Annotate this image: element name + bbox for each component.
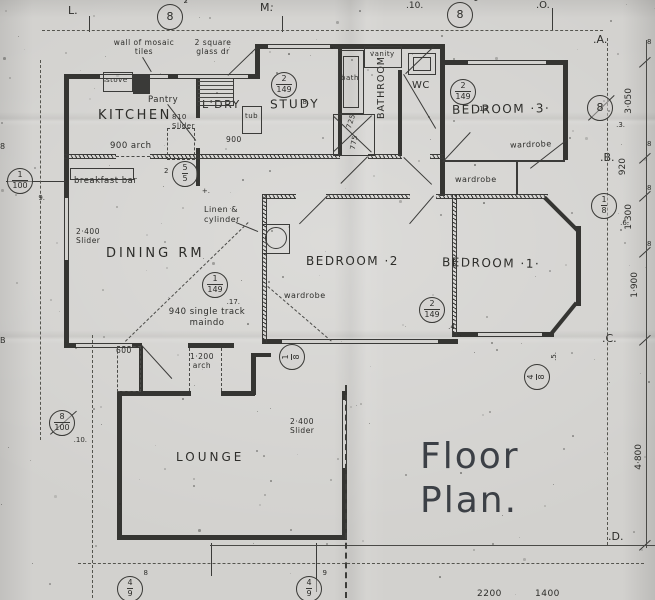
speckle-dot: [155, 445, 156, 446]
wall-segment: [440, 44, 445, 196]
speckle-dot: [101, 424, 102, 425]
edge-fragment: 8: [647, 140, 652, 149]
speckle-dot: [440, 214, 442, 216]
speckle-dot: [405, 326, 406, 327]
speckle-dot: [288, 53, 290, 55]
reference-marker: 55+.2: [172, 161, 198, 187]
marker-number: 8: [457, 9, 464, 21]
speckle-dot: [276, 72, 278, 74]
speckle-dot: [271, 5, 273, 7]
marker-side: +.: [202, 188, 210, 196]
speckle-dot: [585, 137, 588, 140]
marker-denominator: 9: [127, 588, 132, 599]
speckle-dot: [633, 531, 635, 533]
window: [468, 60, 546, 65]
speckle-dot: [345, 188, 346, 189]
speckle-dot: [3, 57, 6, 60]
speckle-dot: [492, 543, 494, 545]
marker-numerator: 2: [460, 82, 465, 91]
dimension-tick: [639, 191, 651, 202]
window: [268, 44, 330, 49]
speckle-dot: [402, 324, 404, 326]
speckle-dot: [620, 229, 622, 231]
arch-reveal: [221, 348, 222, 391]
wall-corner-diagonal: [543, 196, 580, 233]
door-swing-line: [442, 132, 471, 163]
speckle-dot: [193, 485, 195, 487]
interior-wall-hatched: [430, 154, 444, 159]
speckle-dot: [50, 299, 52, 301]
speckle-dot: [49, 583, 51, 585]
arch-reveal: [189, 348, 190, 391]
speckle-dot: [1, 122, 3, 124]
speckle-dot: [93, 408, 95, 410]
speckle-dot: [230, 192, 231, 193]
speckle-dot: [519, 537, 520, 538]
marker-denominator: 149: [276, 84, 291, 95]
reference-marker: 2149.13: [450, 79, 476, 105]
speckle-dot: [100, 406, 102, 408]
window: [478, 332, 542, 337]
speckle-dot: [185, 0, 187, 2]
speckle-dot: [297, 454, 298, 455]
dimension-tick: [639, 57, 651, 68]
marker-denominator: 149: [207, 284, 222, 295]
speckle-dot: [116, 74, 119, 77]
speckle-dot: [418, 160, 420, 162]
marker-side: .10.: [74, 437, 87, 445]
room-label-study: STUDY: [270, 97, 320, 113]
speckle-dot: [161, 223, 162, 224]
marker-sup: 8: [144, 570, 148, 578]
note-arch-900: 900 arch: [110, 141, 152, 152]
speckle-dot: [496, 349, 498, 351]
grid-letter-M: M.: [260, 1, 273, 14]
reference-marker: 81: [447, 2, 473, 28]
speckle-dot: [608, 110, 610, 112]
reference-marker: 2149.8.: [271, 72, 297, 98]
speckle-dot: [523, 558, 526, 561]
speckle-dot: [209, 17, 211, 19]
speckle-dot: [474, 164, 476, 166]
marker-numerator: 1: [282, 354, 291, 359]
wall-segment: [251, 353, 256, 395]
speckle-dot: [610, 20, 612, 22]
door-swing-line: [409, 195, 434, 224]
construction-line-top: [42, 30, 603, 31]
marker-side: .6.: [620, 220, 629, 228]
room-label-lounge: LOUNGE: [176, 450, 244, 465]
speckle-dot: [65, 52, 67, 54]
cupboard-600-outline: [117, 346, 141, 392]
wall-segment: [255, 44, 260, 79]
grid-letter-O: .O.: [536, 0, 550, 11]
speckle-dot: [626, 4, 627, 5]
speckle-dot: [618, 213, 619, 214]
speckle-dot: [163, 186, 164, 187]
marker-sup: 9: [323, 570, 327, 578]
speckle-dot: [428, 116, 430, 118]
speckle-dot: [198, 529, 201, 532]
speckle-dot: [199, 17, 200, 18]
speckle-dot: [30, 460, 31, 461]
speckle-dot: [24, 49, 25, 50]
speckle-dot: [290, 529, 292, 531]
wardrobe-partition: [516, 160, 518, 194]
note-slider-2400-dining: 2·400 Slider: [76, 227, 100, 246]
dim-2200-partial: 2200: [477, 589, 502, 600]
speckle-dot: [629, 265, 630, 266]
dim-1400-partial: 1400: [535, 589, 560, 600]
speckle-dot: [489, 411, 491, 413]
speckle-dot: [362, 540, 364, 542]
speckle-dot: [549, 270, 551, 272]
marker-side: 9.: [38, 195, 45, 203]
speckle-dot: [270, 480, 272, 482]
speckle-dot: [282, 276, 284, 278]
speckle-dot: [288, 226, 290, 228]
speckle-dot: [640, 373, 641, 374]
marker-numerator: 8: [59, 413, 64, 422]
bench-dashed-outline: [167, 128, 195, 160]
grid-letter-A: .A.: [593, 33, 607, 46]
speckle-dot: [212, 262, 215, 265]
marker-numerator: 1: [212, 275, 217, 284]
speckle-dot: [535, 276, 536, 277]
fixture-outline: [70, 168, 134, 180]
speckle-dot: [160, 73, 161, 74]
speckle-dot: [482, 414, 484, 416]
note-linen-cylinder: Linen & cylinder: [204, 205, 240, 225]
speckle-dot: [483, 202, 485, 204]
window: [64, 198, 69, 260]
dim-3050: 3·050: [624, 88, 634, 114]
door-swing-line: [141, 345, 172, 379]
marker-denominator: 8: [601, 205, 606, 216]
marker-pre: 2: [164, 168, 168, 176]
door-swing-line: [299, 195, 328, 224]
interior-wall-hatched: [262, 194, 267, 343]
marker-denominator: 8: [291, 354, 302, 359]
speckle-dot: [460, 472, 462, 474]
marker-number: 8: [597, 102, 604, 114]
speckle-dot: [15, 194, 17, 196]
speckle-dot: [373, 175, 375, 177]
marker-denominator: 100: [12, 180, 27, 191]
reference-marker: 8100.10.: [49, 410, 75, 436]
speckle-dot: [515, 594, 516, 595]
speckle-dot: [648, 381, 650, 383]
speckle-dot: [322, 137, 324, 139]
speckle-dot: [269, 51, 271, 53]
speckle-dot: [594, 359, 595, 360]
speckle-dot: [5, 10, 7, 12]
speckle-dot: [432, 294, 434, 296]
speckle-dot: [214, 61, 215, 62]
wall-segment: [117, 391, 122, 540]
edge-fragment-left: B: [0, 336, 6, 346]
sheet-title-line2: Plan.: [420, 480, 518, 521]
speckle-dot: [242, 179, 244, 181]
speckle-dot: [225, 148, 227, 150]
room-label-dining: DINING RM: [106, 246, 205, 262]
edge-fragment: 8: [647, 38, 652, 47]
speckle-dot: [8, 447, 9, 448]
dim-920: 920: [618, 158, 628, 175]
marker-number: 8: [167, 11, 174, 23]
speckle-dot: [572, 435, 574, 437]
fixture-outline: [413, 57, 431, 71]
speckle-dot: [609, 382, 610, 383]
speckle-dot: [247, 323, 249, 325]
speckle-dot: [569, 137, 571, 139]
speckle-dot: [439, 576, 441, 578]
marker-numerator: 1: [601, 196, 606, 205]
reference-marker: 18: [279, 344, 305, 370]
speckle-dot: [9, 77, 11, 79]
speckle-dot: [326, 543, 328, 545]
grid-letter-L: L.: [68, 4, 78, 17]
speckle-dot: [95, 545, 97, 547]
construction-line-bottom: [78, 563, 644, 564]
marker-side: .13: [477, 106, 488, 114]
speckle-dot: [310, 55, 311, 56]
marker-denominator: 8: [536, 374, 547, 379]
speckle-dot: [331, 47, 333, 49]
marker-numerator: 2: [281, 75, 286, 84]
speckle-dot: [80, 70, 81, 71]
speckle-dot: [1, 189, 4, 192]
speckle-dot: [356, 405, 357, 406]
sheet-title-line1: Floor: [420, 436, 520, 477]
speckle-dot: [604, 452, 605, 453]
note-arch-1200: 1·200 arch: [190, 352, 214, 371]
marker-denominator: 5: [182, 173, 187, 184]
speckle-dot: [350, 406, 352, 408]
grid-letter-D: .D.: [608, 530, 623, 543]
speckle-dot: [370, 366, 371, 367]
dimension-tick: [639, 247, 651, 258]
reference-marker: 1149.17.: [202, 272, 228, 298]
speckle-dot: [572, 130, 574, 132]
speckle-dot: [571, 352, 573, 354]
wall-segment: [117, 535, 347, 540]
construction-line-left-lower: [92, 335, 93, 598]
speckle-dot: [371, 74, 373, 76]
speckle-dot: [232, 138, 233, 139]
speckle-dot: [405, 474, 407, 476]
speckle-dot: [474, 352, 475, 353]
marker-side: .8.: [300, 99, 309, 107]
speckle-dot: [495, 57, 498, 60]
speckle-dot: [59, 311, 60, 312]
speckle-dot: [290, 573, 291, 574]
dimension-line-bottom: [210, 545, 655, 546]
speckle-dot: [202, 369, 203, 370]
dimension-chain-right: [646, 40, 647, 548]
marker-denominator: 149: [424, 309, 439, 320]
speckle-dot: [139, 479, 140, 480]
reference-marker: 499: [296, 576, 322, 600]
construction-line-left: [40, 60, 41, 440]
wardrobe-partition: [443, 160, 565, 162]
reference-marker: 82: [157, 4, 183, 30]
door-swing-line: [340, 156, 368, 184]
speckle-dot: [109, 165, 110, 166]
speckle-dot: [194, 385, 195, 386]
speckle-dot: [603, 100, 605, 102]
speckle-dot: [441, 35, 443, 37]
reference-marker: 18.6.: [591, 193, 617, 219]
marker-numerator: 2: [429, 300, 434, 309]
speckle-dot: [553, 484, 554, 485]
speckle-dot: [251, 52, 253, 54]
interior-wall-hatched: [452, 194, 457, 336]
fixture-outline: [333, 114, 375, 156]
speckle-dot: [103, 336, 105, 338]
speckle-dot: [316, 39, 317, 40]
interior-wall-hatched: [262, 194, 296, 199]
fixture-outline: [343, 56, 359, 108]
speckle-dot: [32, 563, 33, 564]
speckle-dot: [182, 207, 184, 209]
floor-plan-scan: KITCHEN Pantry L'DRY STUDY BATHROOM WC B…: [0, 0, 655, 600]
note-wardrobe-bed2: wardrobe: [284, 291, 326, 301]
note-dim-900: 900: [226, 135, 242, 144]
room-label-kitchen: KITCHEN: [98, 108, 172, 124]
marker-denominator: 100: [54, 422, 69, 433]
speckle-dot: [146, 270, 147, 271]
speckle-dot: [259, 504, 261, 506]
speckle-dot: [617, 53, 619, 55]
hot-water-cylinder: [265, 227, 287, 249]
reference-marker: 2149.4.: [419, 297, 445, 323]
speckle-dot: [182, 398, 184, 400]
wall-segment: [251, 353, 271, 357]
marker-numerator: 4: [127, 579, 132, 588]
speckle-dot: [571, 212, 573, 214]
speckle-dot: [399, 200, 402, 203]
speckle-dot: [177, 354, 179, 356]
speckle-dot: [319, 275, 320, 276]
edge-fragment-left: 8: [0, 142, 6, 152]
speckle-dot: [544, 505, 546, 507]
speckle-dot: [621, 144, 622, 145]
marker-sup: 1: [474, 0, 478, 4]
speckle-dot: [336, 21, 339, 24]
speckle-dot: [473, 549, 475, 551]
speckle-dot: [367, 69, 369, 71]
reference-marker: 11009.: [7, 168, 33, 194]
door-swing-line: [142, 57, 152, 73]
dim-1900: 1·900: [630, 272, 640, 298]
window: [282, 339, 438, 344]
marker-numerator: 4: [527, 374, 536, 379]
marker-side: .4.: [448, 324, 457, 332]
interior-wall-hatched: [326, 194, 410, 199]
sliding-track-line: [116, 156, 150, 157]
speckle-dot: [34, 167, 36, 169]
speckle-dot: [93, 15, 95, 17]
marker-numerator: 1: [17, 171, 22, 180]
note-track-940: 940 single track maindo: [165, 307, 249, 328]
speckle-dot: [164, 145, 165, 146]
speckle-dot: [193, 478, 195, 480]
speckle-dot: [263, 455, 265, 457]
section-line-vertical: [345, 385, 347, 598]
speckle-dot: [270, 408, 271, 409]
reference-marker: 48.5.: [524, 364, 550, 390]
speckle-dot: [268, 281, 270, 283]
door-swing-line: [552, 8, 553, 30]
marker-denominator: 149: [455, 91, 470, 102]
fixture-outline: [242, 106, 262, 134]
speckle-dot: [225, 347, 226, 348]
reference-marker: 8.3.: [587, 95, 613, 121]
speckle-dot: [269, 170, 271, 172]
marker-numerator: 4: [306, 579, 311, 588]
speckle-dot: [146, 234, 148, 236]
speckle-dot: [565, 264, 567, 266]
note-wardrobe-bed3-a: wardrobe: [510, 139, 552, 150]
speckle-dot: [89, 98, 91, 100]
sink-fixture: [133, 74, 150, 94]
speckle-dot: [359, 10, 361, 12]
room-label-wc: WC: [412, 80, 430, 93]
speckle-dot: [168, 297, 169, 298]
wall-segment: [563, 60, 568, 160]
marker-side: .3.: [616, 122, 625, 130]
speckle-dot: [119, 503, 121, 505]
note-glass-door: 2 square glass dr: [186, 38, 240, 57]
speckle-dot: [56, 242, 58, 244]
speckle-dot: [105, 56, 106, 57]
speckle-dot: [256, 450, 258, 452]
marker-denominator: 9: [306, 588, 311, 599]
speckle-dot: [166, 267, 168, 269]
note-mosaic-tiles: wall of mosaic tiles: [112, 38, 176, 57]
marker-side: .17.: [227, 299, 240, 307]
note-wardrobe-bed3-b: wardrobe: [455, 175, 497, 185]
speckle-dot: [75, 347, 77, 349]
speckle-dot: [241, 280, 242, 281]
interior-wall-hatched: [64, 154, 116, 159]
speckle-dot: [624, 242, 626, 244]
speckle-dot: [216, 92, 218, 94]
reference-marker: 498: [117, 576, 143, 600]
speckle-dot: [230, 208, 231, 209]
speckle-dot: [16, 282, 18, 284]
note-slider-2400-lounge: 2·400 Slider: [290, 417, 314, 436]
door-swing-line: [211, 543, 212, 576]
marker-numerator: 5: [182, 164, 187, 173]
speckle-dot: [337, 458, 339, 460]
speckle-dot: [264, 494, 266, 496]
speckle-dot: [641, 549, 643, 551]
speckle-dot: [486, 316, 488, 318]
speckle-dot: [94, 88, 95, 89]
wall-segment: [576, 226, 581, 306]
speckle-dot: [164, 241, 166, 243]
grid-letter-C: .C.: [602, 332, 617, 345]
wall-segment: [398, 70, 402, 156]
room-label-bedroom2: BEDROOM ·2: [306, 254, 399, 269]
speckle-dot: [563, 448, 565, 450]
speckle-dot: [325, 251, 326, 252]
dim-4800: 4·800: [634, 444, 644, 470]
marker-side: .5.: [551, 352, 559, 361]
speckle-dot: [430, 139, 431, 140]
